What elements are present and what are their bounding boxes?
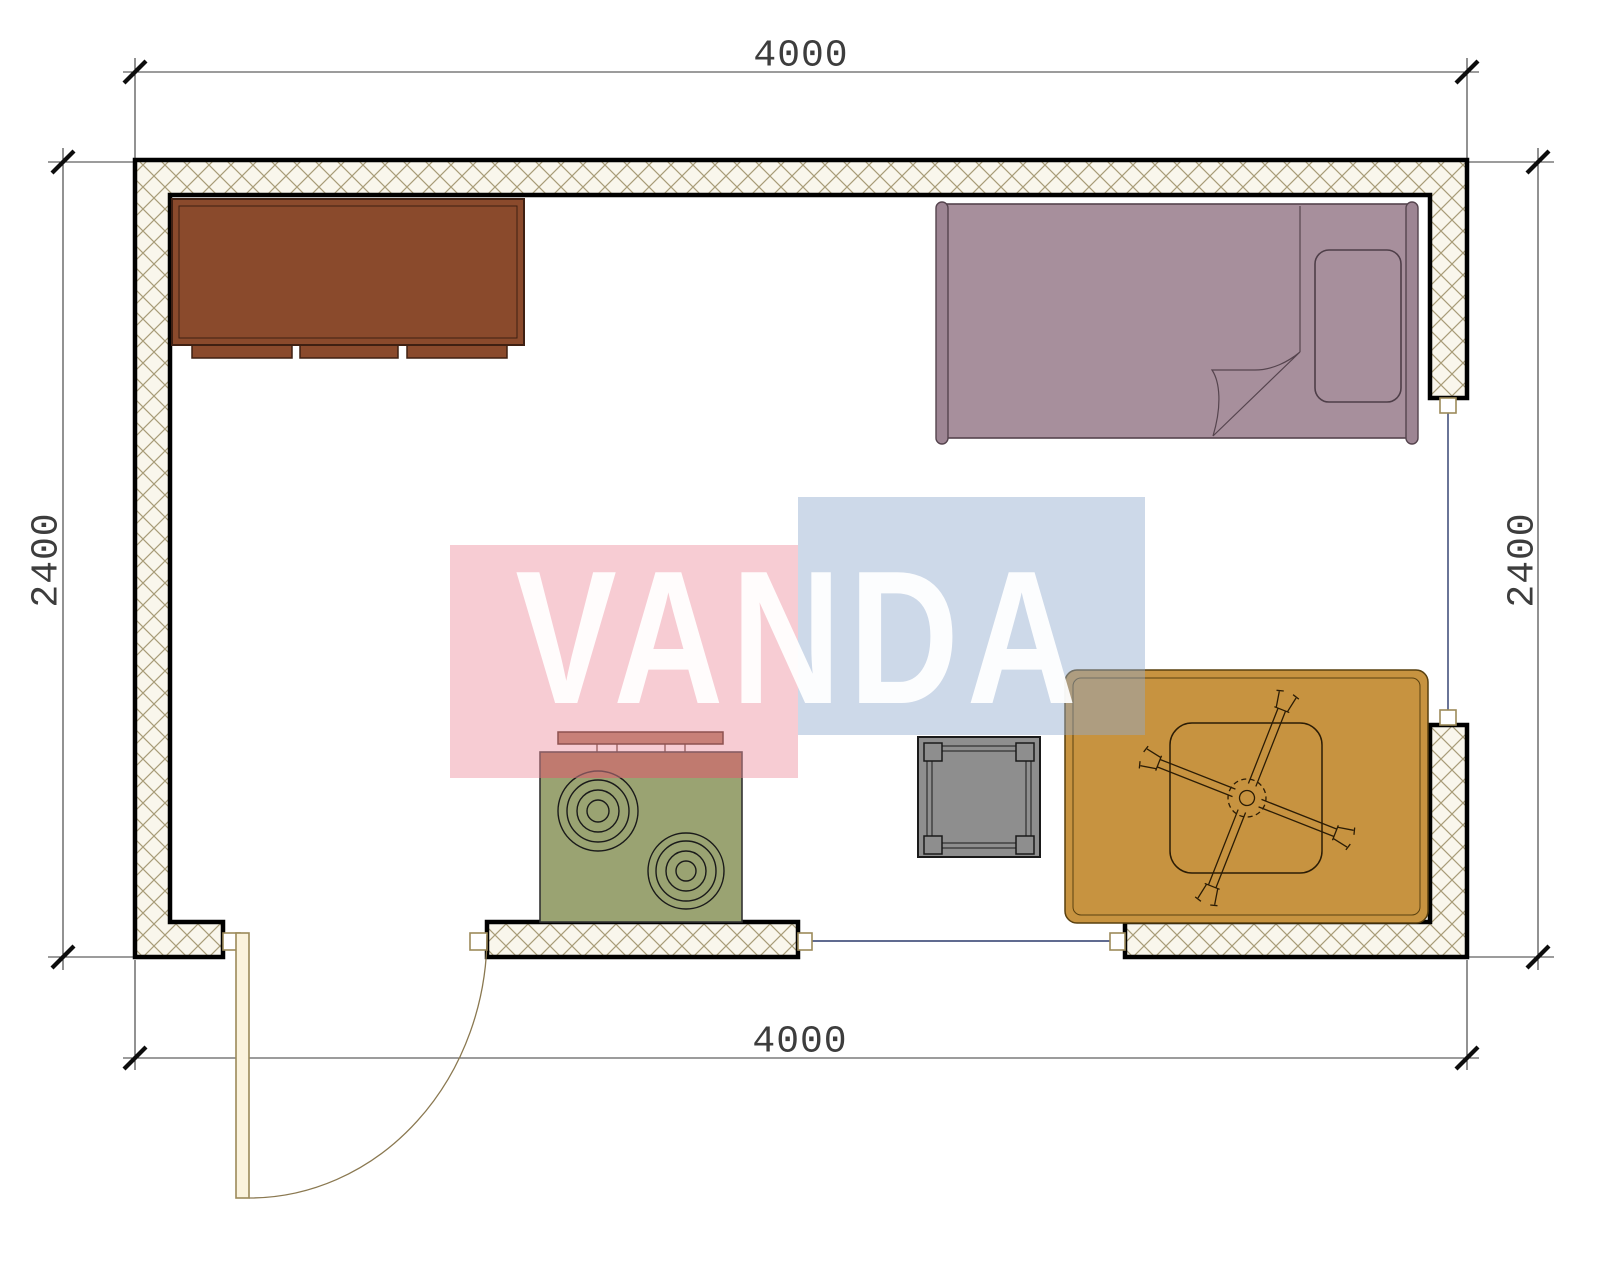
dimension-label-left: 2400 bbox=[26, 512, 69, 607]
bed-post-right bbox=[1406, 202, 1418, 444]
dimension-label-bottom: 4000 bbox=[752, 1021, 847, 1064]
floor-plan-canvas: VANDA 4000 4000 2400 2400 bbox=[0, 0, 1600, 1280]
wall-bottom-center bbox=[487, 922, 798, 957]
window-bottom bbox=[798, 933, 1125, 950]
dresser bbox=[172, 199, 524, 358]
watermark-text: VANDA bbox=[480, 497, 1120, 778]
bed-post-left bbox=[936, 202, 948, 444]
bed bbox=[936, 202, 1418, 444]
door bbox=[223, 933, 487, 1198]
dimension-label-top: 4000 bbox=[753, 35, 848, 78]
dimension-label-right: 2400 bbox=[1502, 512, 1545, 607]
door-leaf bbox=[236, 933, 249, 1198]
door-swing-arc bbox=[249, 935, 487, 1198]
bed-pillow bbox=[1315, 250, 1401, 402]
window-right bbox=[1440, 398, 1456, 725]
